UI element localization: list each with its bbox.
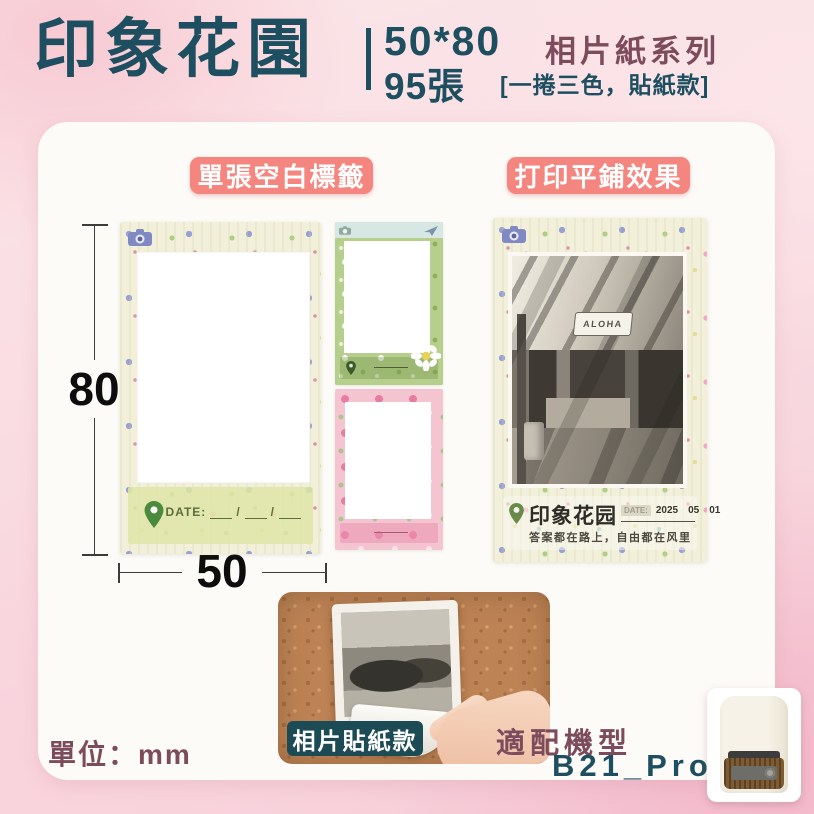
date-label: DATE: — [166, 505, 207, 519]
photo-placeholder — [344, 241, 430, 353]
shop-sign: ALOHA — [573, 312, 634, 336]
date-rule — [374, 367, 408, 368]
storefront-photo: ALOHA — [508, 252, 687, 488]
tagline: 答案都在路上，自由都在风里 — [529, 529, 692, 545]
pole — [517, 314, 526, 488]
blank-label-small-green — [335, 222, 443, 385]
print-caption: 印象花园 DATE: 2025 05 01 答案都在路上，自由都在风里 — [509, 500, 693, 552]
camera-icon — [502, 226, 526, 243]
date-blank — [279, 506, 301, 519]
date-rule — [374, 532, 408, 533]
date-label-chip: DATE: — [621, 505, 651, 516]
blank-label-large: DATE: / / — [120, 222, 321, 554]
brand-name: 印象花园 — [529, 500, 617, 530]
blank-label-badge: 單張空白標籤 — [190, 157, 373, 194]
date-blank — [245, 506, 267, 519]
printer-body — [720, 696, 788, 793]
variant-subtitle: [一捲三色，貼紙款] — [500, 66, 709, 100]
date-year: 2025 — [656, 505, 678, 516]
unit-label: 單位：mm — [48, 733, 192, 773]
printer-roll-band — [724, 758, 784, 789]
date-strip — [340, 523, 438, 543]
storefront-windows — [512, 350, 683, 432]
model-name: B21_Pro — [552, 748, 713, 784]
location-pin-icon — [509, 503, 524, 524]
road — [512, 428, 683, 484]
photo-placeholder — [137, 252, 310, 483]
daisy-icon — [411, 341, 441, 371]
date-day: 01 — [709, 505, 720, 516]
camera-icon — [339, 226, 351, 235]
date-row: DATE: 2025 05 01 — [621, 505, 695, 522]
sticker-style-badge: 相片貼紙款 — [287, 721, 423, 756]
printer-image — [707, 688, 801, 802]
photo-placeholder — [345, 402, 431, 519]
title-divider — [366, 28, 371, 90]
date-slash: / — [271, 505, 275, 519]
series-title: 相片紙系列 — [545, 26, 720, 71]
location-pin-icon — [144, 501, 164, 528]
sheet-count-text: 95張 — [384, 56, 465, 110]
counter — [546, 398, 630, 434]
product-poster: 印象花園 50*80 95張 相片紙系列 [一捲三色，貼紙款] 單張空白標籤 打… — [0, 0, 814, 814]
printer-dial — [765, 768, 775, 778]
date-line: DATE: / / — [166, 505, 301, 519]
printer-panel — [731, 766, 777, 780]
printed-label: ALOHA 印象花园 DATE: 2025 05 01 答案都在路上，自由都在风… — [493, 218, 707, 562]
trash-bin — [524, 422, 544, 460]
blank-label-small-pink — [335, 389, 443, 550]
date-blank — [210, 506, 232, 519]
date-strip: DATE: / / — [128, 487, 313, 544]
date-month: 05 — [688, 505, 699, 516]
location-pin-icon — [346, 361, 356, 375]
date-slash: / — [236, 505, 240, 519]
page-title: 印象花園 — [34, 12, 318, 89]
print-effect-badge: 打印平鋪效果 — [507, 157, 690, 194]
camera-icon — [128, 229, 152, 246]
airplane-icon — [424, 226, 438, 236]
